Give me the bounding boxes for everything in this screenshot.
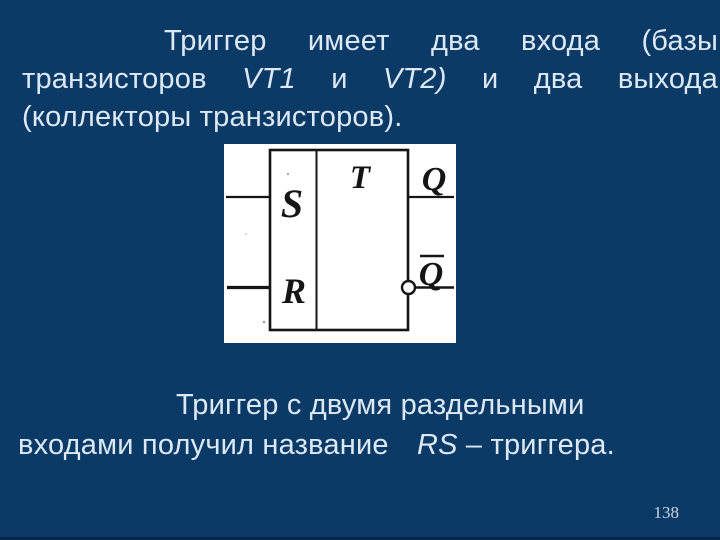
page-number: 138 — [654, 503, 680, 523]
bottom-line2-text-pre: входами получил название — [18, 429, 397, 461]
paragraph-top-line-3: (коллекторы транзисторов). — [22, 98, 718, 136]
flip-flop-symbol: T S R Q Q — [224, 144, 456, 343]
line2-text-mid: и — [296, 63, 383, 95]
paragraph-bottom-line-2: входами получил название RS – триггера. — [18, 425, 680, 465]
inversion-bubble — [402, 281, 415, 294]
paragraph-top: Триггер имеет два входа (базы транзистор… — [22, 22, 718, 136]
line2-text-post: и два выхода — [447, 63, 718, 95]
reset-input-label-r: R — [281, 271, 306, 311]
bottom-line2-text-post: – триггера. — [458, 429, 615, 461]
paragraph-top-line-2: транзисторов VT1 и VT2) и два выхода — [22, 60, 718, 98]
presentation-slide: Триггер имеет два входа (базы транзистор… — [0, 0, 720, 540]
set-input-label-s: S — [281, 181, 303, 226]
type-label-t: T — [350, 160, 372, 196]
scan-speckle — [263, 321, 266, 324]
paragraph-bottom-line-1: Триггер с двумя раздельными — [18, 385, 680, 425]
vt2-designator: VT2) — [383, 63, 447, 95]
scan-speckle — [287, 173, 289, 175]
inverted-output-label-q-bar: Q — [419, 256, 444, 293]
rs-trigger-diagram: T S R Q Q — [224, 144, 456, 343]
rs-designator: RS — [417, 429, 458, 461]
paragraph-top-line-1: Триггер имеет два входа (базы — [22, 22, 718, 60]
paragraph-bottom: Триггер с двумя раздельными входами полу… — [18, 385, 680, 465]
scan-speckle — [245, 233, 247, 235]
vt1-designator: VT1 — [242, 63, 296, 95]
output-label-q: Q — [422, 161, 447, 198]
line2-text-pre: транзисторов — [22, 63, 242, 95]
